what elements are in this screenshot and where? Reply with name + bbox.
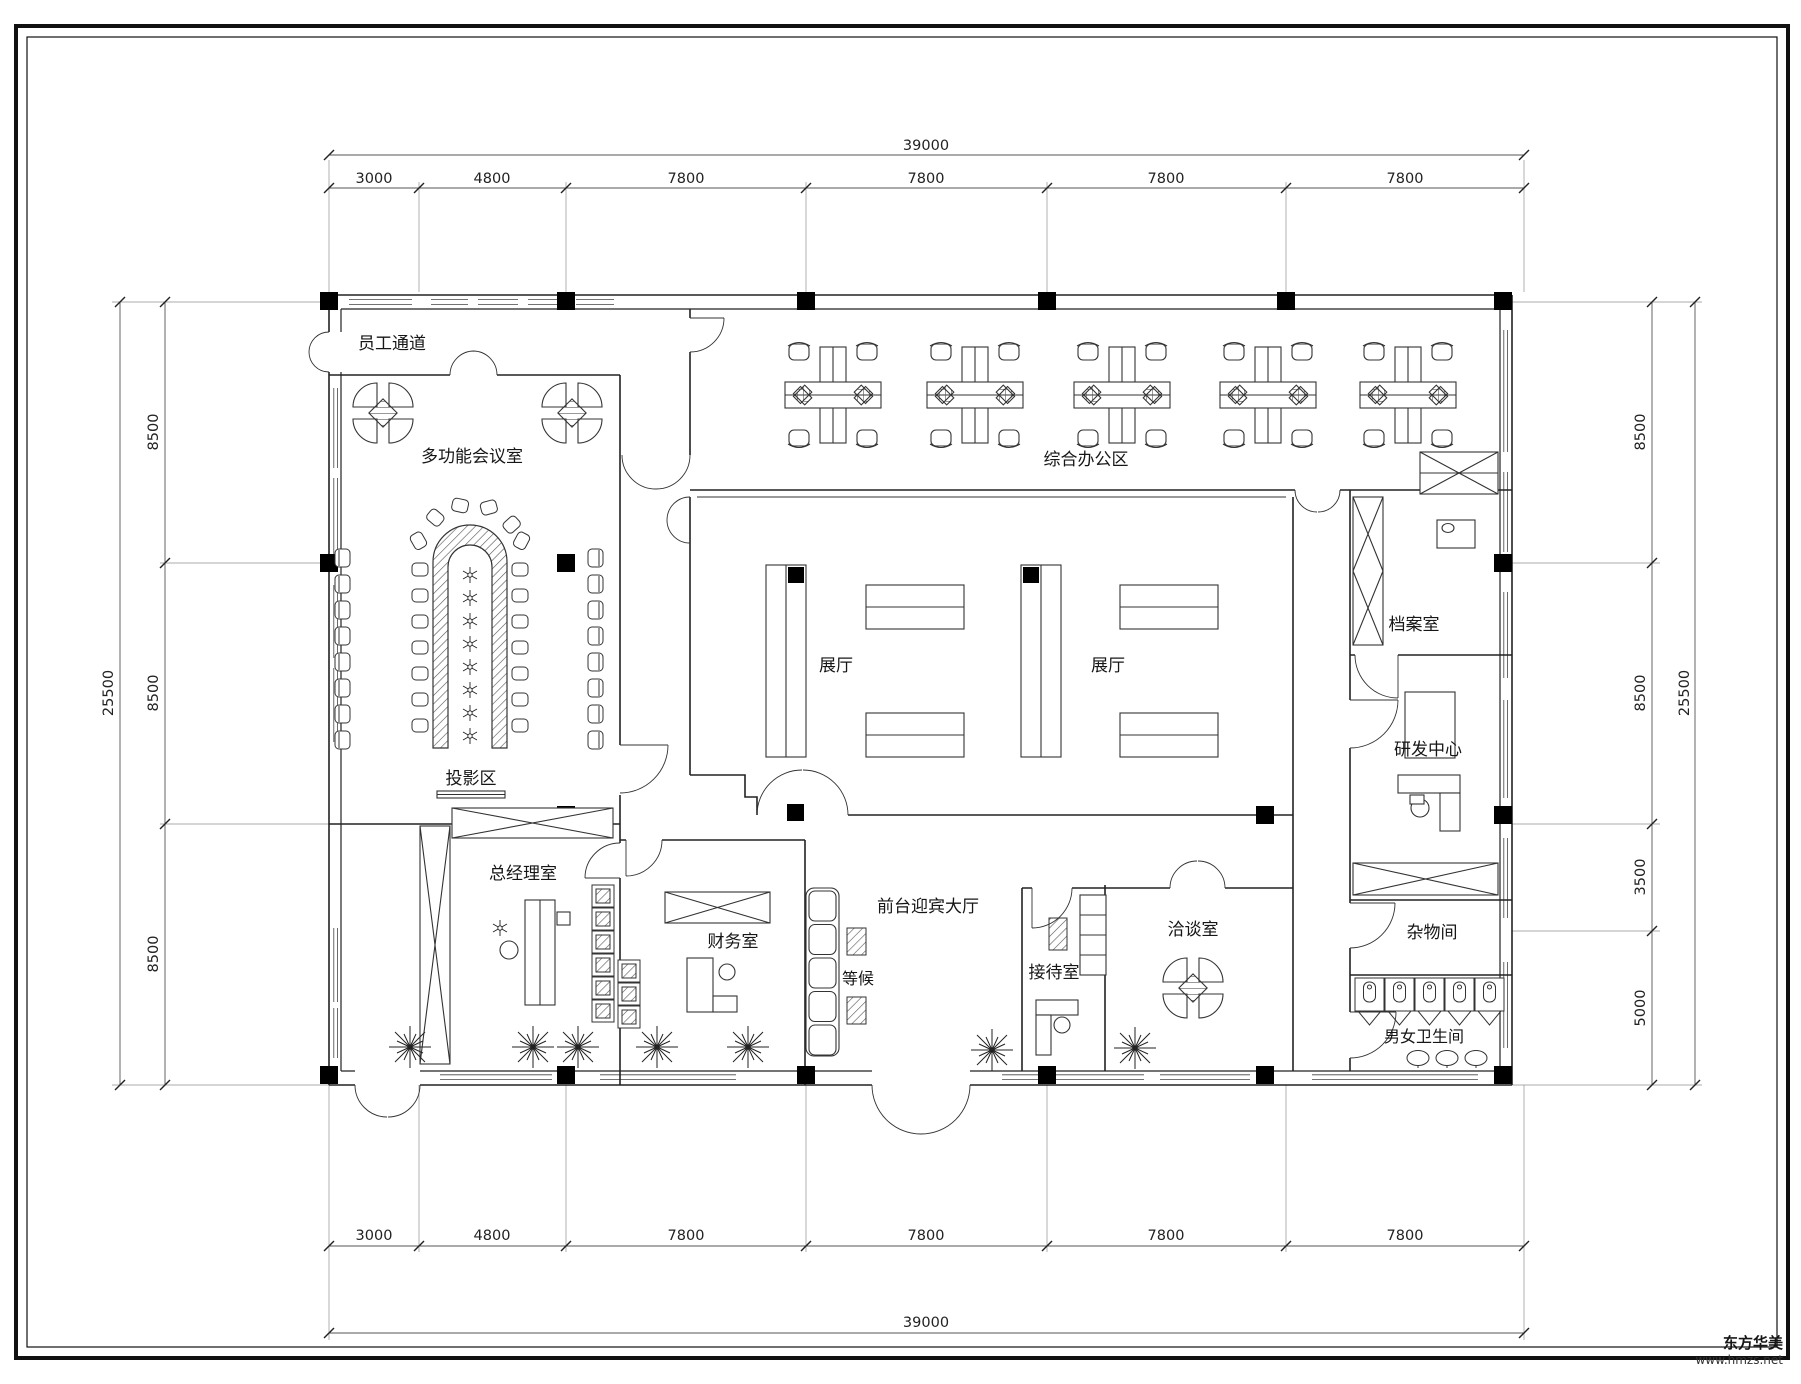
- dim-top-seg: 3000: [356, 171, 393, 187]
- dim-top-seg: 7800: [668, 171, 705, 187]
- dim-bottom-total: 39000: [903, 1315, 949, 1331]
- workstation-pod: [1074, 343, 1170, 448]
- dim-left-seg: 8500: [146, 414, 162, 451]
- label-office-area: 综合办公区: [1044, 450, 1129, 470]
- dim-right-seg: 8500: [1633, 675, 1649, 712]
- dim-bottom-seg: 4800: [474, 1228, 511, 1244]
- negotiation-door: [1170, 861, 1225, 888]
- label-storage: 杂物间: [1407, 923, 1458, 943]
- label-toilets: 男女卫生间: [1384, 1027, 1464, 1046]
- label-archive: 档案室: [1389, 615, 1440, 635]
- toilet-fixtures: [1355, 978, 1504, 1068]
- label-lobby: 前台迎宾大厅: [877, 897, 979, 917]
- window-bands: [334, 300, 1508, 1080]
- dim-left-total: 25500: [101, 670, 117, 716]
- frame-inner-border: [27, 37, 1777, 1347]
- label-meeting-room: 多功能会议室: [421, 447, 523, 467]
- lounge-cluster: [542, 383, 602, 443]
- meeting-room-furniture: [335, 383, 613, 1064]
- dim-right-seg: 5000: [1633, 990, 1649, 1027]
- gm-exterior-door: [355, 1085, 420, 1117]
- rnd-furniture: [1353, 692, 1498, 895]
- dim-bottom-seg: 7800: [908, 1228, 945, 1244]
- label-projection: 投影区: [446, 769, 497, 789]
- workstation-pod: [1220, 343, 1316, 448]
- office-entry-door: [690, 318, 724, 352]
- dim-right-seg: 3500: [1633, 859, 1649, 896]
- projection-corridor-door: [620, 745, 668, 793]
- dim-bottom-seg: 3000: [356, 1228, 393, 1244]
- lounge-cluster: [353, 383, 413, 443]
- dim-right-total: 25500: [1677, 670, 1693, 716]
- dimension-bottom: 3000 4800 7800 7800 7800 7800 39000: [324, 1228, 1529, 1338]
- label-finance: 财务室: [708, 932, 759, 952]
- office-workstations: [785, 343, 1456, 448]
- label-rnd-center: 研发中心: [1394, 740, 1462, 760]
- dim-top-seg: 4800: [474, 171, 511, 187]
- dimension-left: 25500 8500 8500 8500: [101, 297, 170, 1090]
- floor-plan-page: 39000 3000 4800 7800 7800 7800 7800 3000…: [0, 0, 1801, 1384]
- frame-outer-border: [16, 26, 1788, 1358]
- projection-screen: [437, 791, 505, 798]
- decor-squares: [592, 885, 640, 1028]
- watermark-site: www.hmzs.net: [1695, 1353, 1783, 1367]
- office-wing-door: [1295, 490, 1340, 512]
- tall-cabinet: [420, 826, 450, 1064]
- label-staff-corridor: 员工通道: [358, 334, 426, 354]
- dim-right-seg: 8500: [1633, 414, 1649, 451]
- dimension-top: 39000 3000 4800 7800 7800 7800 7800: [324, 138, 1529, 193]
- corridor-meeting-door: [450, 351, 497, 375]
- staff-entrance-door: [309, 332, 329, 372]
- gm-office-furniture: [493, 900, 570, 1005]
- wall-chair-rows: [335, 549, 603, 749]
- exhibition-side-door: [667, 497, 690, 543]
- negotiation-furniture: [1163, 958, 1223, 1018]
- label-exhibition-2: 展厅: [1091, 656, 1125, 676]
- workstation-pod: [785, 343, 881, 448]
- dim-left-seg: 8500: [146, 675, 162, 712]
- dim-bottom-seg: 7800: [1387, 1228, 1424, 1244]
- dim-bottom-seg: 7800: [1148, 1228, 1185, 1244]
- dim-top-seg: 7800: [1148, 171, 1185, 187]
- dim-top-seg: 7800: [1387, 171, 1424, 187]
- rnd-door: [1350, 700, 1398, 748]
- dim-bottom-seg: 7800: [668, 1228, 705, 1244]
- main-entrance-door: [872, 1085, 970, 1134]
- dim-top-seg: 7800: [908, 171, 945, 187]
- finance-furniture: [665, 892, 770, 1012]
- watermark: 东方华美 www.hmzs.net: [1695, 1334, 1784, 1367]
- archive-door: [1355, 655, 1398, 698]
- finance-door: [626, 840, 662, 876]
- dim-top-total: 39000: [903, 138, 949, 154]
- floor-plan-drawing: 39000 3000 4800 7800 7800 7800 7800 3000…: [0, 0, 1801, 1384]
- label-gm-office: 总经理室: [489, 864, 557, 884]
- gm-office-door: [585, 843, 620, 878]
- label-reception: 接待室: [1029, 963, 1080, 983]
- watermark-brand: 东方华美: [1723, 1334, 1784, 1352]
- dim-left-seg: 8500: [146, 936, 162, 973]
- corridor-double-door: [622, 455, 690, 489]
- dimension-right: 8500 8500 3500 5000 25500: [1633, 297, 1700, 1090]
- storage-closet: [452, 808, 613, 838]
- label-waiting: 等候: [842, 969, 874, 988]
- label-exhibition-1: 展厅: [819, 656, 853, 676]
- label-negotiation: 洽谈室: [1168, 920, 1219, 940]
- workstation-pod: [1360, 343, 1456, 448]
- sheet-frame: [16, 26, 1788, 1358]
- workstation-pod: [927, 343, 1023, 448]
- storage-door: [1350, 903, 1395, 948]
